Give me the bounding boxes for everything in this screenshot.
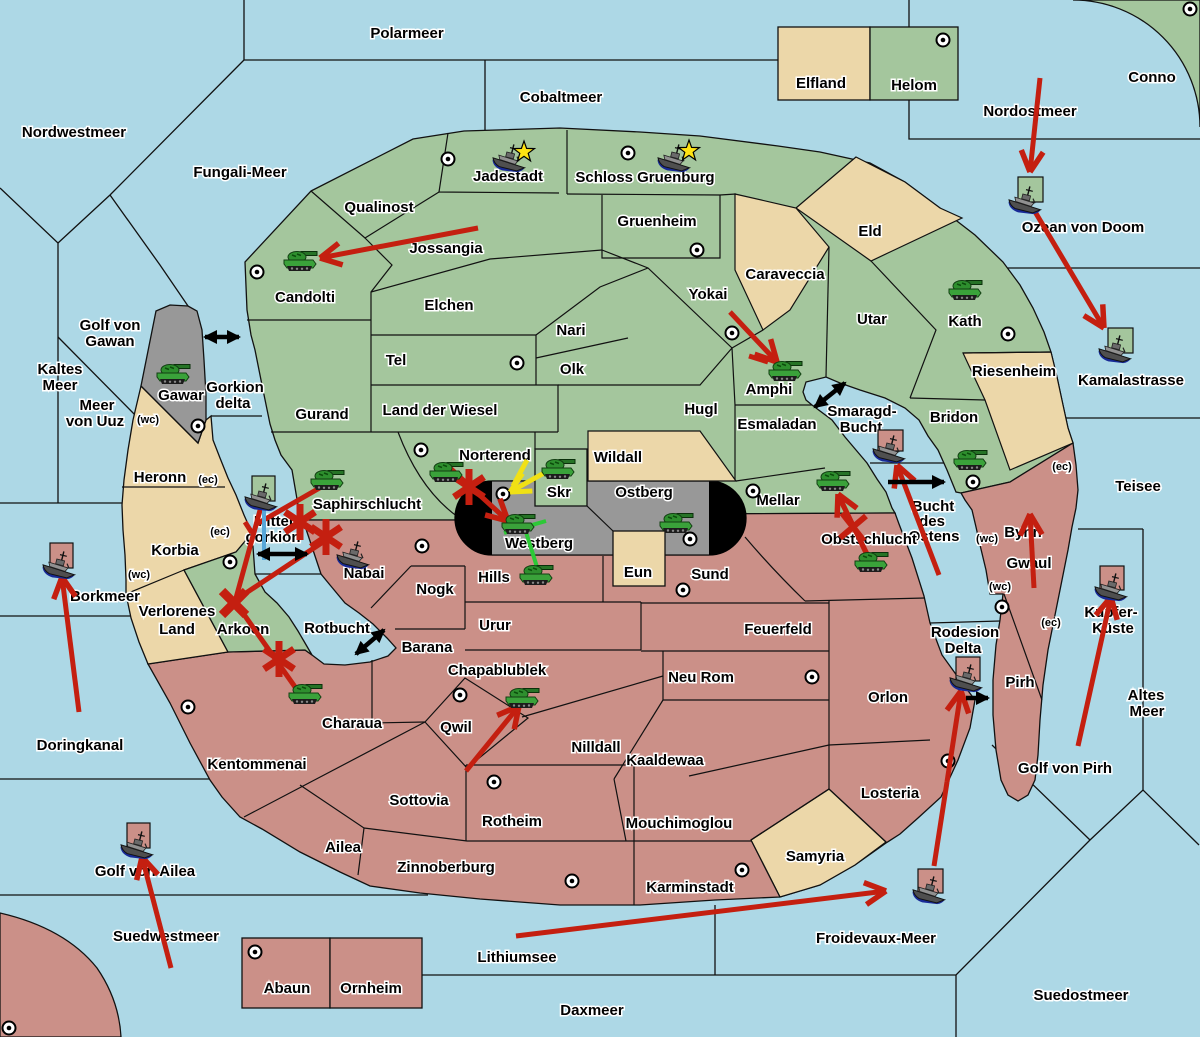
svg-text:Borkmeer: Borkmeer bbox=[70, 588, 140, 605]
svg-text:Eun: Eun bbox=[624, 564, 652, 581]
svg-text:Rodesion: Rodesion bbox=[931, 624, 999, 641]
svg-text:Mellar: Mellar bbox=[756, 492, 800, 509]
svg-text:Bynn: Bynn bbox=[1004, 524, 1042, 541]
svg-text:Skr: Skr bbox=[547, 484, 571, 501]
svg-text:Tel: Tel bbox=[386, 352, 407, 369]
svg-text:Conno: Conno bbox=[1128, 69, 1175, 86]
svg-text:Küste: Küste bbox=[1092, 620, 1134, 637]
svg-text:Doringkanal: Doringkanal bbox=[37, 737, 124, 754]
svg-text:Karminstadt: Karminstadt bbox=[646, 879, 734, 896]
svg-text:Gurand: Gurand bbox=[295, 406, 348, 423]
svg-text:Ailea: Ailea bbox=[325, 839, 362, 856]
svg-text:Polarmeer: Polarmeer bbox=[370, 25, 444, 42]
svg-text:Smaragd-: Smaragd- bbox=[827, 403, 896, 420]
svg-text:Nordwestmeer: Nordwestmeer bbox=[22, 124, 126, 141]
svg-text:Nogk: Nogk bbox=[416, 581, 454, 598]
svg-text:Feuerfeld: Feuerfeld bbox=[744, 621, 812, 638]
svg-text:Pirh: Pirh bbox=[1005, 674, 1034, 691]
svg-text:Suedostmeer: Suedostmeer bbox=[1033, 987, 1128, 1004]
svg-text:Samyria: Samyria bbox=[786, 848, 845, 865]
svg-text:Bucht: Bucht bbox=[840, 419, 883, 436]
svg-text:Land: Land bbox=[159, 621, 195, 638]
svg-text:Bridon: Bridon bbox=[930, 409, 978, 426]
svg-text:Elchen: Elchen bbox=[424, 297, 473, 314]
svg-text:Meer: Meer bbox=[42, 377, 77, 394]
svg-text:Eld: Eld bbox=[858, 223, 881, 240]
svg-text:Losteria: Losteria bbox=[861, 785, 920, 802]
svg-text:Esmaladan: Esmaladan bbox=[737, 416, 816, 433]
svg-text:von Uuz: von Uuz bbox=[66, 413, 124, 430]
svg-text:Chapablublek: Chapablublek bbox=[448, 662, 547, 679]
svg-text:Hugl: Hugl bbox=[684, 401, 717, 418]
svg-text:Teisee: Teisee bbox=[1115, 478, 1161, 495]
svg-text:Rotheim: Rotheim bbox=[482, 813, 542, 830]
svg-text:Cobaltmeer: Cobaltmeer bbox=[520, 89, 603, 106]
svg-text:Daxmeer: Daxmeer bbox=[560, 1002, 624, 1019]
svg-text:Gorkion: Gorkion bbox=[206, 379, 264, 396]
svg-text:(wc): (wc) bbox=[128, 569, 150, 581]
svg-text:Korbia: Korbia bbox=[151, 542, 199, 559]
svg-text:Ostberg: Ostberg bbox=[615, 484, 673, 501]
svg-text:Ornheim: Ornheim bbox=[340, 980, 402, 997]
svg-text:Saphirschlucht: Saphirschlucht bbox=[313, 496, 421, 513]
svg-text:Zinnoberburg: Zinnoberburg bbox=[397, 859, 495, 876]
svg-text:Gruenheim: Gruenheim bbox=[617, 213, 696, 230]
svg-text:Sund: Sund bbox=[691, 566, 729, 583]
svg-text:Neu Rom: Neu Rom bbox=[668, 669, 734, 686]
svg-text:Norterend: Norterend bbox=[459, 447, 531, 464]
svg-text:Golf von Pirh: Golf von Pirh bbox=[1018, 760, 1112, 777]
svg-text:Nari: Nari bbox=[556, 322, 585, 339]
svg-text:Lithiumsee: Lithiumsee bbox=[477, 949, 556, 966]
svg-text:(ec): (ec) bbox=[198, 474, 218, 486]
svg-text:(wc): (wc) bbox=[976, 533, 998, 545]
svg-text:(wc): (wc) bbox=[137, 414, 159, 426]
svg-text:Helom: Helom bbox=[891, 77, 937, 94]
svg-text:Hills: Hills bbox=[478, 569, 510, 586]
svg-text:Land der Wiesel: Land der Wiesel bbox=[383, 402, 498, 419]
svg-text:Kentommenai: Kentommenai bbox=[207, 756, 306, 773]
svg-text:Wildall: Wildall bbox=[594, 449, 642, 466]
svg-text:Meer: Meer bbox=[1129, 703, 1164, 720]
svg-text:(ec): (ec) bbox=[1052, 461, 1072, 473]
svg-text:delta: delta bbox=[215, 395, 251, 412]
svg-text:Elfland: Elfland bbox=[796, 75, 846, 92]
svg-text:Caraveccia: Caraveccia bbox=[745, 266, 825, 283]
svg-text:Mouchimoglou: Mouchimoglou bbox=[626, 815, 733, 832]
svg-text:Kaltes: Kaltes bbox=[37, 361, 82, 378]
svg-text:Nordostmeer: Nordostmeer bbox=[983, 103, 1077, 120]
svg-text:Riesenheim: Riesenheim bbox=[972, 363, 1056, 380]
svg-text:Froidevaux-Meer: Froidevaux-Meer bbox=[816, 930, 936, 947]
svg-text:Qwil: Qwil bbox=[440, 719, 472, 736]
svg-text:Barana: Barana bbox=[402, 639, 454, 656]
svg-text:Obstschlucht: Obstschlucht bbox=[821, 531, 917, 548]
svg-text:Altes: Altes bbox=[1128, 687, 1165, 704]
svg-text:Westberg: Westberg bbox=[505, 535, 573, 552]
svg-text:Kath: Kath bbox=[948, 313, 981, 330]
svg-text:Abaun: Abaun bbox=[264, 980, 311, 997]
svg-text:Utar: Utar bbox=[857, 311, 887, 328]
svg-text:Qualinost: Qualinost bbox=[344, 199, 413, 216]
svg-text:Sottovia: Sottovia bbox=[389, 792, 449, 809]
svg-text:(ec): (ec) bbox=[210, 526, 230, 538]
svg-text:Verlorenes: Verlorenes bbox=[139, 603, 216, 620]
svg-text:Jossangia: Jossangia bbox=[409, 240, 483, 257]
svg-text:Gawar: Gawar bbox=[158, 387, 204, 404]
svg-text:Kaaldewaa: Kaaldewaa bbox=[626, 752, 704, 769]
svg-text:Heronn: Heronn bbox=[134, 469, 187, 486]
svg-text:(wc): (wc) bbox=[989, 581, 1011, 593]
svg-text:(ec): (ec) bbox=[1041, 617, 1061, 629]
svg-text:Golf von: Golf von bbox=[80, 317, 141, 334]
svg-text:Yokai: Yokai bbox=[689, 286, 728, 303]
svg-text:Amphi: Amphi bbox=[746, 381, 793, 398]
svg-text:Nilldall: Nilldall bbox=[571, 739, 620, 756]
svg-text:Charaua: Charaua bbox=[322, 715, 383, 732]
svg-text:Orlon: Orlon bbox=[868, 689, 908, 706]
svg-text:Schloss Gruenburg: Schloss Gruenburg bbox=[575, 169, 714, 186]
svg-text:Fungali-Meer: Fungali-Meer bbox=[193, 164, 287, 181]
svg-text:Rotbucht: Rotbucht bbox=[304, 620, 370, 637]
svg-text:Gwaul: Gwaul bbox=[1006, 555, 1051, 572]
svg-text:Olk: Olk bbox=[560, 361, 585, 378]
svg-text:Kamalastrasse: Kamalastrasse bbox=[1078, 372, 1184, 389]
svg-text:Meer: Meer bbox=[79, 397, 114, 414]
svg-text:Gawan: Gawan bbox=[85, 333, 134, 350]
svg-text:Candolti: Candolti bbox=[275, 289, 335, 306]
svg-text:Urur: Urur bbox=[479, 617, 511, 634]
svg-text:Delta: Delta bbox=[945, 640, 982, 657]
